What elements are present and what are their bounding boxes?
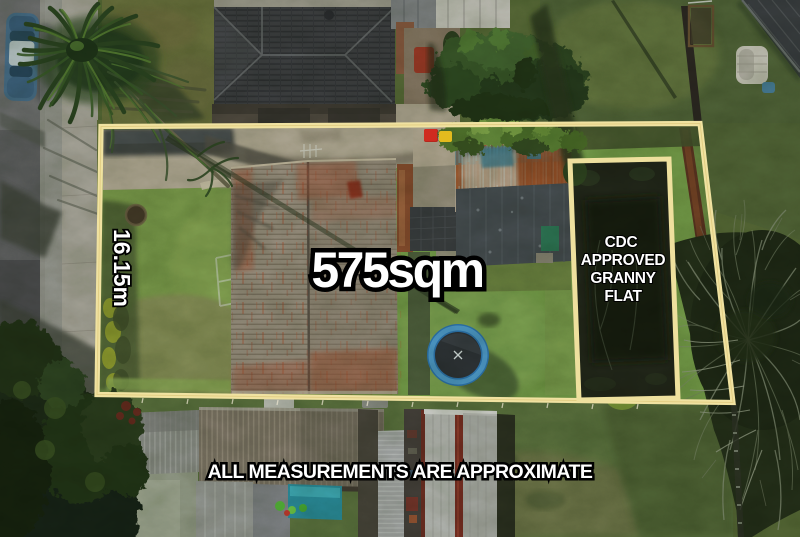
svg-text:575sqm: 575sqm [311, 242, 482, 298]
svg-text:16.15m: 16.15m [109, 229, 135, 307]
svg-text:ALL MEASUREMENTS ARE APPROXIMA: ALL MEASUREMENTS ARE APPROXIMATE [208, 461, 593, 483]
